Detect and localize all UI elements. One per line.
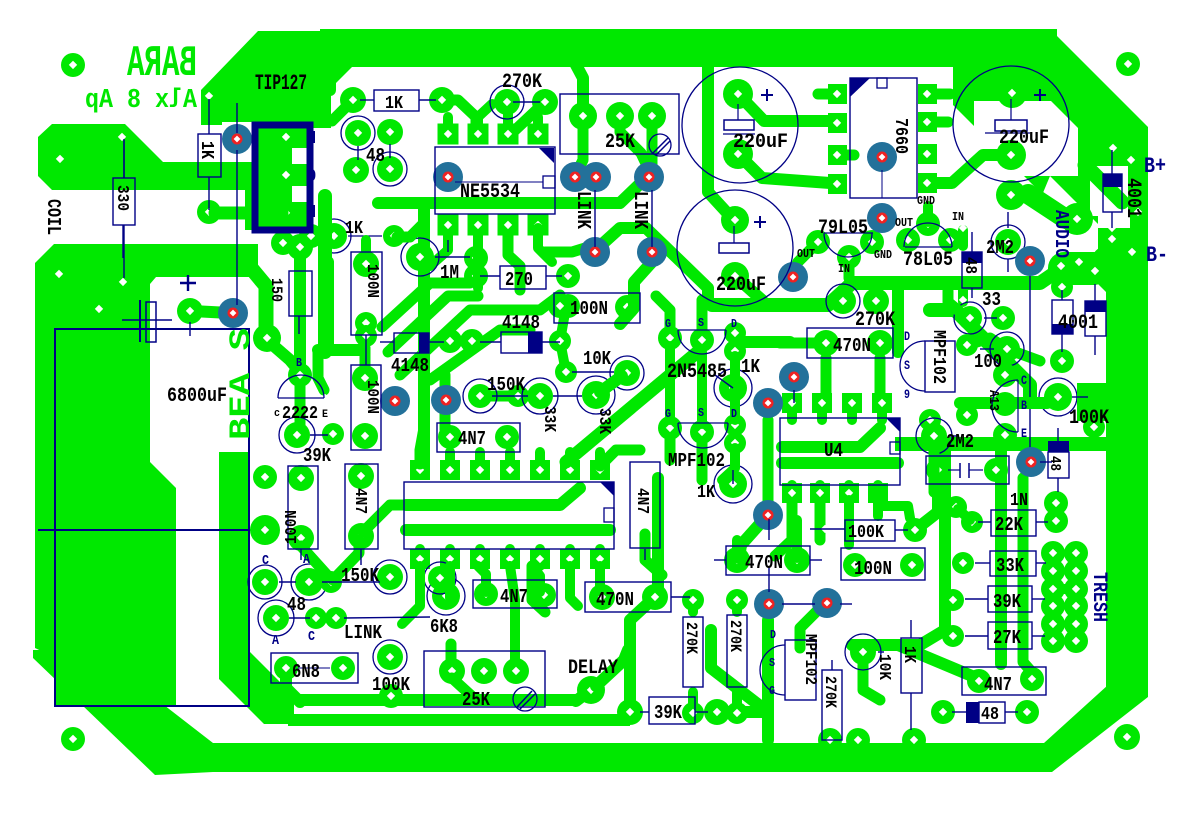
svg-text:78L05: 78L05 bbox=[903, 249, 953, 272]
svg-text:270K: 270K bbox=[855, 309, 895, 332]
svg-text:270K: 270K bbox=[821, 676, 839, 708]
svg-text:100: 100 bbox=[974, 351, 1002, 373]
svg-text:BARA: BARA bbox=[127, 39, 197, 89]
svg-text:6800uF: 6800uF bbox=[167, 385, 227, 408]
svg-text:48: 48 bbox=[960, 257, 979, 274]
svg-text:33K: 33K bbox=[996, 555, 1024, 577]
svg-text:220uF: 220uF bbox=[716, 274, 766, 297]
svg-text:9: 9 bbox=[904, 387, 910, 402]
svg-text:D: D bbox=[731, 407, 737, 421]
svg-text:B+: B+ bbox=[1144, 154, 1166, 179]
svg-text:AUDIO: AUDIO bbox=[1050, 210, 1072, 258]
svg-text:48: 48 bbox=[366, 145, 385, 167]
svg-text:4001: 4001 bbox=[1121, 178, 1144, 218]
svg-text:G: G bbox=[665, 407, 671, 421]
svg-text:1K: 1K bbox=[385, 94, 403, 114]
svg-text:39K: 39K bbox=[303, 445, 331, 467]
svg-text:39K: 39K bbox=[993, 591, 1021, 613]
svg-text:4148: 4148 bbox=[502, 312, 540, 334]
svg-text:GND: GND bbox=[874, 248, 892, 262]
svg-text:33K: 33K bbox=[594, 408, 613, 435]
svg-text:4148: 4148 bbox=[391, 355, 429, 377]
svg-text:220uF: 220uF bbox=[999, 127, 1049, 150]
svg-text:10K: 10K bbox=[583, 348, 611, 370]
svg-text:OUT: OUT bbox=[895, 216, 913, 230]
svg-text:470N: 470N bbox=[833, 335, 871, 357]
svg-text:6K8: 6K8 bbox=[430, 616, 458, 638]
svg-text:C: C bbox=[307, 167, 316, 187]
svg-text:C: C bbox=[308, 629, 315, 645]
svg-text:1K: 1K bbox=[741, 356, 760, 378]
svg-text:OUT: OUT bbox=[797, 247, 815, 261]
svg-text:2M2: 2M2 bbox=[986, 237, 1014, 259]
svg-text:1K: 1K bbox=[196, 141, 216, 159]
svg-text:4N7: 4N7 bbox=[500, 586, 528, 608]
svg-text:1K: 1K bbox=[697, 483, 715, 503]
svg-text:LINK: LINK bbox=[629, 191, 651, 229]
svg-text:2N5485: 2N5485 bbox=[667, 361, 727, 384]
svg-text:A13: A13 bbox=[985, 390, 1001, 411]
svg-text:100N: 100N bbox=[570, 298, 608, 320]
svg-text:100N: 100N bbox=[362, 264, 381, 298]
svg-text:IN: IN bbox=[838, 262, 850, 276]
svg-text:E: E bbox=[322, 409, 328, 421]
svg-text:4N7: 4N7 bbox=[984, 674, 1012, 696]
svg-text:470N: 470N bbox=[596, 589, 634, 611]
svg-text:270K: 270K bbox=[682, 622, 700, 654]
svg-text:150K: 150K bbox=[341, 565, 379, 587]
svg-text:4N7: 4N7 bbox=[350, 488, 369, 514]
svg-text:G: G bbox=[769, 684, 775, 698]
svg-text:330: 330 bbox=[112, 185, 131, 211]
svg-text:IN: IN bbox=[952, 210, 964, 224]
svg-text:39K: 39K bbox=[654, 702, 682, 724]
svg-text:A: A bbox=[303, 552, 310, 568]
svg-text:C: C bbox=[1021, 373, 1027, 388]
svg-text:1N: 1N bbox=[1010, 491, 1028, 511]
svg-text:79L05: 79L05 bbox=[818, 217, 868, 240]
svg-text:100K: 100K bbox=[848, 523, 884, 543]
svg-text:MPF102: MPF102 bbox=[668, 450, 725, 472]
svg-text:6N8: 6N8 bbox=[292, 661, 320, 683]
svg-text:C: C bbox=[262, 553, 269, 569]
svg-text:1M: 1M bbox=[440, 262, 459, 284]
svg-text:Alx 8 Ap: Alx 8 Ap bbox=[85, 86, 197, 116]
svg-text:BEA S: BEA S bbox=[225, 328, 259, 440]
svg-text:10K: 10K bbox=[874, 654, 893, 681]
svg-text:2222: 2222 bbox=[282, 404, 318, 424]
svg-text:D: D bbox=[770, 628, 776, 642]
svg-text:7660: 7660 bbox=[890, 118, 910, 154]
svg-text:2M2: 2M2 bbox=[946, 431, 974, 453]
svg-text:LINK: LINK bbox=[572, 191, 594, 229]
svg-text:B: B bbox=[307, 203, 316, 223]
svg-text:33: 33 bbox=[982, 289, 1001, 311]
svg-text:G: G bbox=[665, 317, 671, 331]
svg-text:100N: 100N bbox=[854, 558, 892, 580]
svg-text:1K: 1K bbox=[899, 646, 918, 664]
svg-text:27K: 27K bbox=[993, 627, 1021, 649]
svg-text:25K: 25K bbox=[605, 131, 635, 154]
svg-text:E: E bbox=[1021, 426, 1027, 441]
svg-text:D: D bbox=[731, 317, 737, 331]
svg-text:270: 270 bbox=[505, 269, 533, 291]
svg-text:4001: 4001 bbox=[1058, 312, 1098, 335]
svg-text:S: S bbox=[698, 316, 704, 330]
svg-text:S: S bbox=[698, 406, 704, 420]
svg-text:D: D bbox=[904, 329, 910, 344]
svg-text:B: B bbox=[296, 356, 302, 370]
svg-text:U4: U4 bbox=[824, 440, 843, 462]
svg-text:c: c bbox=[274, 408, 280, 420]
svg-text:100N: 100N bbox=[283, 510, 302, 544]
svg-text:33K: 33K bbox=[539, 406, 558, 433]
svg-text:E: E bbox=[307, 129, 316, 149]
svg-text:TIP127: TIP127 bbox=[255, 71, 307, 96]
svg-text:TRESH: TRESH bbox=[1087, 572, 1110, 622]
svg-text:48: 48 bbox=[981, 705, 999, 725]
svg-text:B-: B- bbox=[1146, 243, 1168, 268]
svg-text:NE5534: NE5534 bbox=[460, 181, 520, 204]
svg-text:470N: 470N bbox=[745, 552, 783, 574]
svg-text:4N7: 4N7 bbox=[632, 488, 651, 514]
svg-text:GND: GND bbox=[917, 194, 935, 208]
svg-text:270K: 270K bbox=[502, 71, 542, 94]
svg-text:100K: 100K bbox=[1069, 407, 1109, 430]
svg-text:1K: 1K bbox=[345, 219, 363, 239]
svg-text:4N7: 4N7 bbox=[458, 428, 486, 450]
svg-text:220uF: 220uF bbox=[733, 131, 788, 154]
svg-text:150: 150 bbox=[267, 278, 285, 302]
svg-text:100K: 100K bbox=[372, 674, 410, 696]
svg-text:270K: 270K bbox=[726, 620, 744, 652]
svg-text:A: A bbox=[272, 633, 279, 649]
svg-text:S: S bbox=[904, 358, 910, 373]
svg-text:DELAY: DELAY bbox=[568, 657, 618, 680]
svg-text:COIL: COIL bbox=[42, 199, 64, 235]
svg-text:25K: 25K bbox=[462, 689, 490, 711]
svg-text:S: S bbox=[769, 656, 775, 670]
svg-text:LINK: LINK bbox=[344, 622, 382, 644]
svg-text:150K: 150K bbox=[487, 374, 525, 396]
svg-text:48: 48 bbox=[287, 594, 306, 616]
svg-text:MPF102: MPF102 bbox=[928, 330, 948, 384]
svg-text:100N: 100N bbox=[362, 380, 381, 414]
svg-text:B: B bbox=[1021, 398, 1027, 413]
svg-text:22K: 22K bbox=[995, 514, 1023, 536]
svg-text:MPF102: MPF102 bbox=[800, 634, 819, 685]
